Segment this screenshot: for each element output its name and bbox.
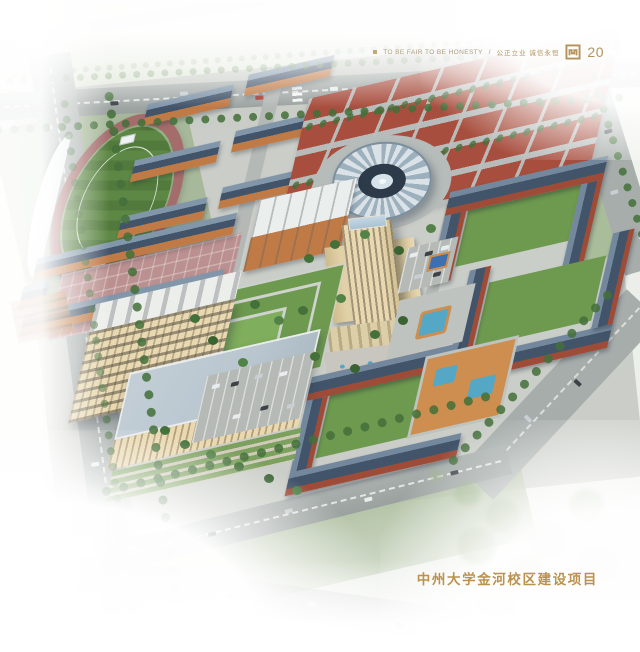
campus-aerial-rendering: TO BE FAIR TO BE HONESTY / 公正立业 诚信永恒 20 … [0,0,640,652]
tower-core [342,220,404,325]
motto-separator: / [489,49,491,56]
motto-bullet-icon [373,50,377,54]
fountain-pool [415,305,453,340]
parked-cars [409,252,418,258]
parked-cars [211,383,220,389]
page-footer: 中州大学金河校区建设项目 [417,568,598,589]
crosswalk-southwest [217,580,233,607]
tree-clump-central [250,300,260,309]
dorm-block [130,141,221,182]
goal-north [119,133,136,145]
gold-seal-icon [565,44,581,60]
tree-clump-south [180,440,190,449]
page-number: 20 [587,44,604,60]
project-title: 中州大学金河校区建设项目 [417,572,598,587]
plaza-fountains [340,364,345,369]
fountain-pool [433,365,458,387]
motto-chinese: 公正立业 诚信永恒 [497,47,560,57]
cars-south [129,545,138,551]
tree-clump-dome [330,240,340,249]
motto-english: TO BE FAIR TO BE HONESTY [383,49,483,56]
cars-southwest [120,572,128,577]
page-header: TO BE FAIR TO BE HONESTY / 公正立业 诚信永恒 20 [373,44,604,60]
